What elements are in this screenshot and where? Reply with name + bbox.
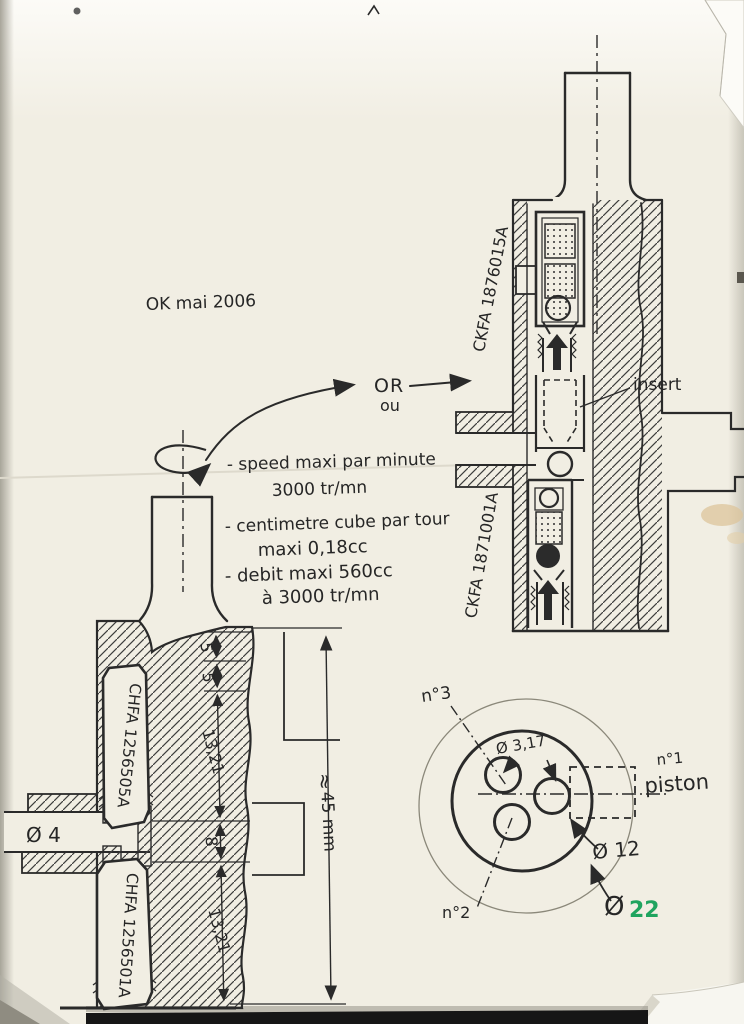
dim-overall: 45 mm: [316, 791, 339, 852]
hole-dim-label: Ø 3,17: [495, 732, 547, 758]
right-arrow-icon: [410, 381, 468, 386]
check-ball: [540, 489, 558, 507]
axis-n2: [477, 818, 512, 908]
boss-profile: [252, 803, 304, 875]
spec-cc-2: maxi 0,18cc: [257, 536, 367, 561]
scanner-strip: [86, 1010, 648, 1024]
flange-profile: [284, 632, 340, 740]
check-ball-seated: [536, 544, 560, 568]
ink-speck: [74, 8, 81, 15]
approx-mark: ≈: [312, 772, 337, 791]
label-n2: n°2: [442, 903, 470, 922]
bore-dim-label: Ø 12: [591, 836, 640, 864]
or-connector: [206, 381, 468, 460]
insert-label: insert: [633, 375, 682, 395]
right-assembly-drawing: CKFA 1876015A CKFA 1871001A insert: [456, 35, 744, 631]
section-view: n°3 Ø 3,17 n°1 piston Ø 12 n°2 Ø 22: [419, 683, 710, 923]
label-n1: n°1: [656, 749, 684, 769]
technical-sketch: OK mai 2006 OR ou - speed maxi par minut…: [0, 0, 744, 1024]
port-diameter-label: Ø 4: [26, 823, 61, 847]
paper-stain: [701, 504, 743, 526]
spring-pack: [536, 512, 562, 544]
specs-note: - speed maxi par minute 3000 tr/mn - cen…: [224, 450, 449, 609]
cartridge-upper-label: CKFA 1876015A: [469, 224, 512, 353]
check-ball: [546, 296, 570, 320]
dim-5-lower: 5: [199, 672, 219, 684]
scanned-paper-page: OK mai 2006 OR ou - speed maxi par minut…: [0, 0, 744, 1024]
label-piston: piston: [644, 770, 710, 798]
spec-cc-1: - centimetre cube par tour: [224, 509, 449, 537]
outer-dim-value: 22: [629, 898, 660, 923]
label-n3: n°3: [420, 683, 453, 707]
cartridge-lower-label: CKFA 1871001A: [461, 490, 502, 619]
port-wall-upper: [28, 794, 97, 812]
port-wall-upper: [456, 412, 513, 433]
outer-dim-symbol: Ø: [604, 892, 624, 922]
spec-speed-2: 3000 tr/mn: [271, 478, 367, 501]
check-ball: [548, 452, 572, 476]
date-note: OK mai 2006: [145, 291, 256, 315]
piston-outline-dashed: [570, 767, 635, 818]
hole-dim-leader: [547, 760, 555, 779]
port-wall-lower: [456, 465, 513, 487]
dim-5-upper: 5: [197, 642, 217, 654]
piston-hole-2: [495, 805, 530, 840]
hole-dim-leader: [505, 761, 514, 771]
rotation-arrow-icon: [156, 445, 208, 473]
spec-debit-1: - debit maxi 560cc: [224, 560, 393, 587]
edge-mark: [737, 272, 744, 283]
spec-speed-1: - speed maxi par minute: [227, 450, 436, 475]
or-label: OR: [374, 375, 404, 397]
piston-hole-1: [535, 779, 570, 814]
dim-8: 8: [202, 836, 222, 848]
curved-arrow-icon: [206, 385, 352, 460]
spring-pack: [545, 264, 575, 298]
spring-pack: [545, 224, 575, 258]
ou-label: ou: [380, 396, 400, 415]
spec-debit-2: à 3000 tr/mn: [261, 584, 379, 609]
outer-dim-label: Ø 22: [604, 892, 660, 923]
port-wall-lower: [22, 852, 97, 873]
